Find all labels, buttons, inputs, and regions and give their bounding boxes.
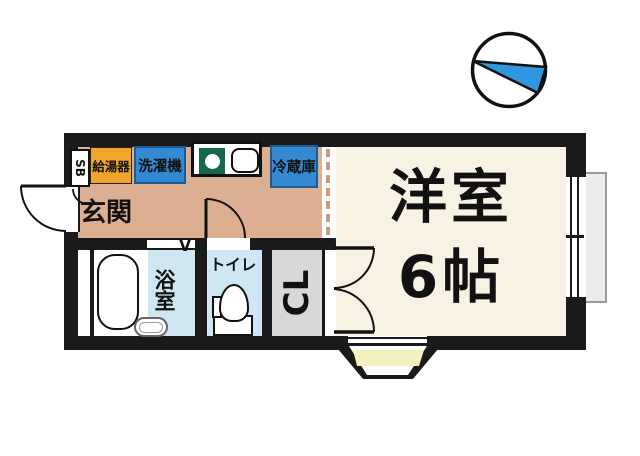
toilet-label: トイレ xyxy=(204,253,262,275)
bathroom-label: 浴室 xyxy=(153,261,179,319)
refrigerator-label: 冷蔵庫 xyxy=(272,156,316,177)
refrigerator-box: 冷蔵庫 xyxy=(270,145,318,188)
window-sill-outer xyxy=(583,172,607,303)
closet-label: CL xyxy=(272,268,322,318)
entrance-label: 玄関 xyxy=(74,192,138,229)
window-right-meeting-tick xyxy=(566,235,584,238)
bath-stool-icon xyxy=(134,317,168,337)
main-room-name: 洋室 xyxy=(389,157,513,237)
wall-right-lower xyxy=(566,297,586,350)
bath-stool-inner xyxy=(139,322,163,333)
entrance-door-arc xyxy=(21,186,66,231)
window-bottom-line xyxy=(348,337,427,339)
shoe-box-label: SB xyxy=(73,159,87,177)
main-room-label: 洋室 6帖 xyxy=(336,147,566,327)
balcony-step-white xyxy=(349,346,427,375)
shoe-box: SB xyxy=(70,149,90,187)
compass-icon xyxy=(468,29,554,115)
wall-toilet-closet xyxy=(262,250,272,336)
wall-bottom-right xyxy=(427,336,586,350)
kitchen-sink-unit xyxy=(191,141,262,177)
kitchen-room-boundary-dashed-line xyxy=(326,149,330,236)
burner-circle-icon xyxy=(205,154,220,169)
wall-top xyxy=(64,133,586,147)
balcony-step-yellow xyxy=(353,350,424,366)
wall-divider-a xyxy=(64,238,147,250)
sink-basin-icon xyxy=(231,148,259,173)
wall-right-upper xyxy=(566,133,586,177)
wall-divider-c xyxy=(250,238,336,250)
water-heater-label: 給湯器 xyxy=(92,156,130,175)
water-heater-box: 給湯器 xyxy=(90,147,132,184)
wall-bottom-left xyxy=(64,336,348,350)
main-room-size: 6帖 xyxy=(398,237,504,317)
washing-machine-box: 洗濯機 xyxy=(134,146,186,184)
wall-bath-column-line xyxy=(90,250,94,336)
bath-folding-door-mark: V xyxy=(171,237,199,255)
wall-closet-right-line xyxy=(322,250,325,336)
washing-machine-label: 洗濯機 xyxy=(138,155,182,176)
floor-plan: SB 給湯器 洗濯機 冷蔵庫 xyxy=(0,0,640,456)
stove-burner-icon xyxy=(199,148,225,174)
bathtub-icon xyxy=(97,254,139,330)
